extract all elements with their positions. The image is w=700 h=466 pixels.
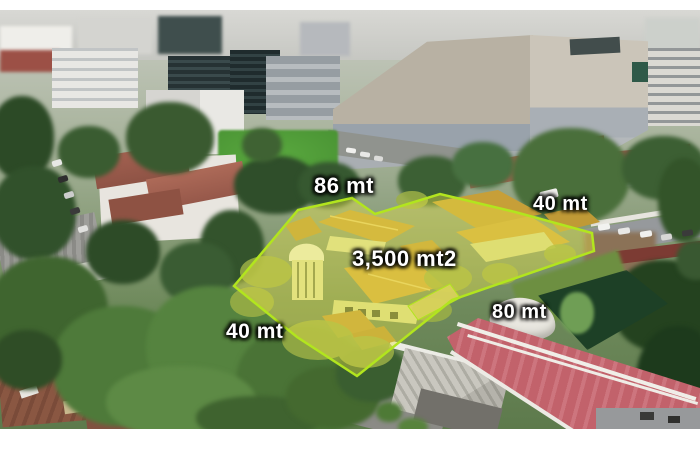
measurement-label-area: 3,500 mt2: [352, 246, 457, 272]
palm-tree: [560, 292, 594, 334]
bush: [376, 402, 402, 422]
measurement-label-bottom-side: 80 mt: [492, 301, 547, 324]
measurement-label-top-side: 86 mt: [314, 173, 374, 199]
distant-building: [300, 22, 350, 56]
tree-canopy: [0, 330, 62, 390]
tree-canopy: [126, 102, 214, 174]
measurement-label-right-side: 40 mt: [533, 193, 588, 216]
car: [374, 155, 384, 161]
tree-canopy: [452, 142, 514, 188]
car: [51, 159, 62, 168]
white-tower: [648, 48, 700, 126]
tree-canopy: [86, 220, 160, 284]
tree-canopy: [58, 126, 120, 178]
distant-red-roof: [0, 50, 60, 72]
tree-canopy: [242, 128, 282, 162]
bush: [398, 418, 428, 429]
rooftop-unit: [640, 412, 654, 420]
measurement-label-left-side: 40 mt: [226, 320, 283, 344]
aerial-photo: 86 mt 40 mt 3,500 mt2 40 mt 80 mt: [0, 10, 700, 429]
green-sign: [632, 62, 648, 82]
distant-building: [645, 18, 700, 52]
car: [69, 207, 80, 216]
walkway-roof: [408, 284, 460, 320]
office-building: [52, 48, 138, 108]
page: { "photo": { "description": "Aerial dron…: [0, 0, 700, 466]
rooftop-unit: [570, 37, 621, 56]
distant-building: [158, 16, 222, 54]
parking-structure: [266, 56, 340, 120]
tree-canopy: [658, 158, 700, 242]
rooftop-unit: [668, 416, 680, 423]
